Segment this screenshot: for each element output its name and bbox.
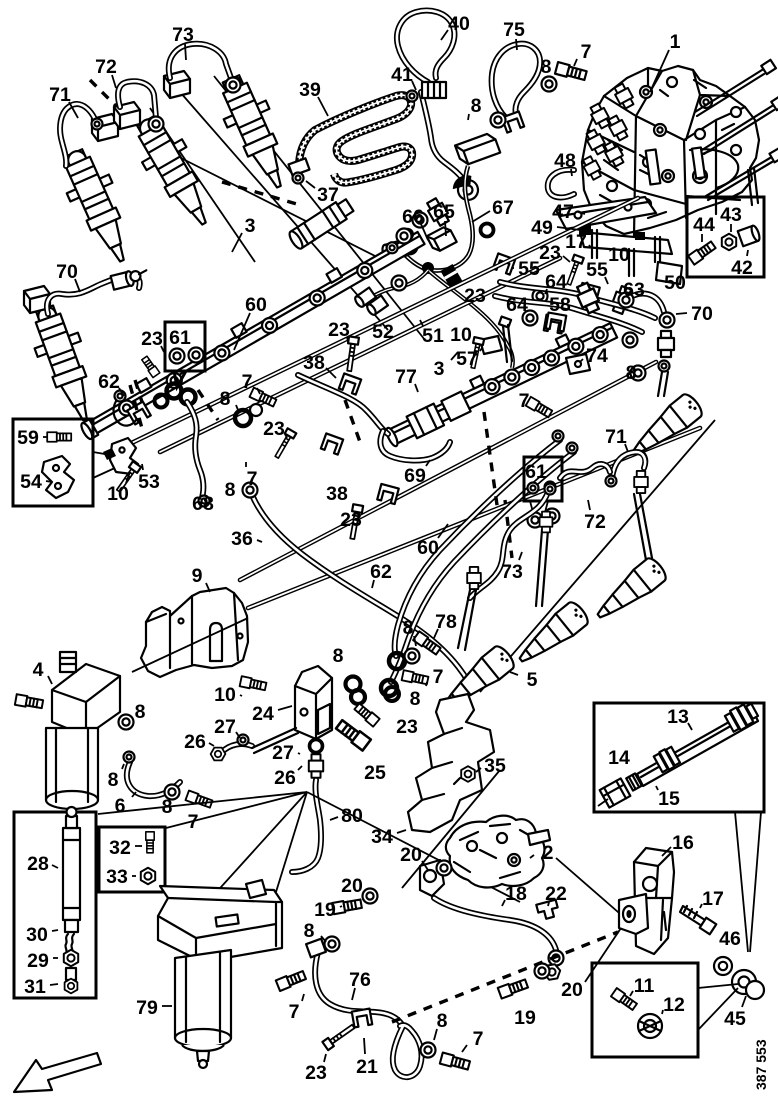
svg-text:32: 32 bbox=[109, 837, 131, 859]
svg-text:42: 42 bbox=[731, 257, 753, 279]
svg-text:31: 31 bbox=[24, 976, 46, 998]
svg-text:64: 64 bbox=[545, 271, 567, 293]
svg-text:33: 33 bbox=[106, 866, 128, 888]
svg-text:7: 7 bbox=[242, 371, 253, 393]
svg-text:37: 37 bbox=[317, 184, 339, 206]
svg-text:12: 12 bbox=[663, 994, 685, 1016]
svg-text:8: 8 bbox=[304, 920, 315, 942]
svg-text:45: 45 bbox=[724, 1008, 746, 1030]
svg-text:8: 8 bbox=[162, 796, 173, 818]
svg-text:75: 75 bbox=[503, 19, 525, 41]
svg-text:20: 20 bbox=[400, 844, 422, 866]
svg-text:49: 49 bbox=[531, 217, 553, 239]
svg-text:53: 53 bbox=[138, 471, 160, 493]
svg-text:8: 8 bbox=[410, 688, 421, 710]
svg-text:14: 14 bbox=[608, 747, 630, 769]
svg-text:8: 8 bbox=[437, 1010, 448, 1032]
svg-text:80: 80 bbox=[341, 805, 363, 827]
svg-text:11: 11 bbox=[634, 975, 655, 997]
svg-text:23: 23 bbox=[464, 285, 486, 307]
svg-text:55: 55 bbox=[518, 258, 540, 280]
svg-text:8: 8 bbox=[333, 645, 344, 667]
svg-text:61: 61 bbox=[169, 327, 191, 349]
svg-text:1: 1 bbox=[670, 31, 681, 53]
svg-text:22: 22 bbox=[545, 883, 567, 905]
svg-text:10: 10 bbox=[608, 244, 630, 266]
svg-text:51: 51 bbox=[422, 325, 444, 347]
svg-text:69: 69 bbox=[404, 465, 426, 487]
svg-text:13: 13 bbox=[667, 706, 689, 728]
svg-text:9: 9 bbox=[192, 565, 203, 587]
svg-text:40: 40 bbox=[448, 13, 470, 35]
svg-text:23: 23 bbox=[305, 1062, 327, 1084]
svg-text:3: 3 bbox=[245, 215, 256, 237]
svg-text:7: 7 bbox=[289, 1001, 300, 1023]
svg-text:6: 6 bbox=[115, 795, 126, 817]
svg-text:59: 59 bbox=[17, 427, 39, 449]
svg-text:8: 8 bbox=[403, 617, 414, 639]
svg-text:7: 7 bbox=[581, 41, 592, 63]
svg-text:77: 77 bbox=[395, 366, 417, 388]
svg-text:70: 70 bbox=[691, 303, 713, 325]
svg-text:67: 67 bbox=[492, 197, 514, 219]
svg-text:48: 48 bbox=[554, 150, 576, 172]
svg-text:16: 16 bbox=[672, 832, 694, 854]
svg-text:62: 62 bbox=[98, 371, 120, 393]
svg-text:25: 25 bbox=[364, 762, 386, 784]
svg-text:52: 52 bbox=[372, 321, 394, 343]
svg-text:38: 38 bbox=[303, 352, 325, 374]
svg-text:57: 57 bbox=[456, 348, 478, 370]
svg-text:23: 23 bbox=[539, 242, 561, 264]
svg-text:24: 24 bbox=[252, 703, 274, 725]
svg-text:62: 62 bbox=[370, 561, 392, 583]
svg-text:73: 73 bbox=[172, 24, 194, 46]
svg-text:8: 8 bbox=[108, 769, 119, 791]
svg-text:19: 19 bbox=[514, 1007, 536, 1029]
svg-text:2: 2 bbox=[543, 842, 554, 864]
svg-text:34: 34 bbox=[371, 826, 393, 848]
svg-text:47: 47 bbox=[552, 201, 574, 223]
svg-text:8: 8 bbox=[626, 362, 637, 384]
svg-text:29: 29 bbox=[27, 950, 49, 972]
svg-text:41: 41 bbox=[391, 64, 413, 86]
svg-text:46: 46 bbox=[719, 928, 741, 950]
svg-text:63: 63 bbox=[623, 279, 645, 301]
svg-text:61: 61 bbox=[525, 461, 547, 483]
svg-text:23: 23 bbox=[263, 418, 285, 440]
svg-text:8: 8 bbox=[471, 95, 482, 117]
svg-text:30: 30 bbox=[26, 924, 48, 946]
svg-text:5: 5 bbox=[527, 669, 538, 691]
svg-text:387 553: 387 553 bbox=[753, 1039, 769, 1090]
svg-text:35: 35 bbox=[484, 755, 506, 777]
svg-text:7: 7 bbox=[188, 811, 199, 833]
svg-text:17: 17 bbox=[702, 888, 724, 910]
svg-text:26: 26 bbox=[274, 767, 296, 789]
svg-text:23: 23 bbox=[340, 509, 362, 531]
svg-text:8: 8 bbox=[220, 388, 231, 410]
svg-text:72: 72 bbox=[584, 511, 606, 533]
svg-text:18: 18 bbox=[505, 883, 527, 905]
svg-text:71: 71 bbox=[49, 84, 71, 106]
svg-text:7: 7 bbox=[473, 1028, 484, 1050]
svg-text:10: 10 bbox=[450, 324, 472, 346]
svg-text:50: 50 bbox=[664, 272, 686, 294]
svg-text:27: 27 bbox=[272, 742, 294, 764]
svg-text:15: 15 bbox=[658, 788, 680, 810]
svg-text:58: 58 bbox=[549, 294, 571, 316]
svg-text:10: 10 bbox=[214, 684, 236, 706]
svg-text:20: 20 bbox=[561, 979, 583, 1001]
svg-text:60: 60 bbox=[417, 537, 439, 559]
svg-text:44: 44 bbox=[693, 214, 715, 236]
svg-text:36: 36 bbox=[231, 528, 253, 550]
svg-text:76: 76 bbox=[349, 969, 371, 991]
svg-text:28: 28 bbox=[27, 853, 49, 875]
svg-text:72: 72 bbox=[95, 56, 117, 78]
svg-text:21: 21 bbox=[356, 1056, 378, 1078]
svg-text:60: 60 bbox=[245, 294, 267, 316]
svg-text:71: 71 bbox=[605, 426, 627, 448]
svg-text:54: 54 bbox=[20, 471, 42, 493]
svg-text:7: 7 bbox=[433, 666, 444, 688]
svg-text:68: 68 bbox=[192, 493, 214, 515]
svg-text:3: 3 bbox=[434, 358, 445, 380]
svg-text:27: 27 bbox=[214, 716, 236, 738]
svg-text:4: 4 bbox=[33, 659, 44, 681]
svg-text:23: 23 bbox=[141, 328, 163, 350]
svg-text:8: 8 bbox=[225, 479, 236, 501]
svg-text:65: 65 bbox=[433, 201, 455, 223]
svg-text:20: 20 bbox=[341, 875, 363, 897]
svg-text:64: 64 bbox=[506, 294, 528, 316]
svg-text:43: 43 bbox=[720, 204, 742, 226]
svg-text:38: 38 bbox=[326, 483, 348, 505]
svg-text:8: 8 bbox=[135, 701, 146, 723]
svg-text:23: 23 bbox=[396, 716, 418, 738]
svg-text:17: 17 bbox=[565, 231, 587, 253]
svg-text:19: 19 bbox=[314, 899, 336, 921]
svg-text:73: 73 bbox=[501, 561, 523, 583]
svg-text:26: 26 bbox=[184, 731, 206, 753]
svg-text:8: 8 bbox=[541, 56, 552, 78]
svg-text:79: 79 bbox=[136, 997, 158, 1019]
svg-text:7: 7 bbox=[247, 468, 258, 490]
svg-text:74: 74 bbox=[586, 345, 608, 367]
svg-text:7: 7 bbox=[519, 390, 530, 412]
svg-text:10: 10 bbox=[107, 483, 129, 505]
